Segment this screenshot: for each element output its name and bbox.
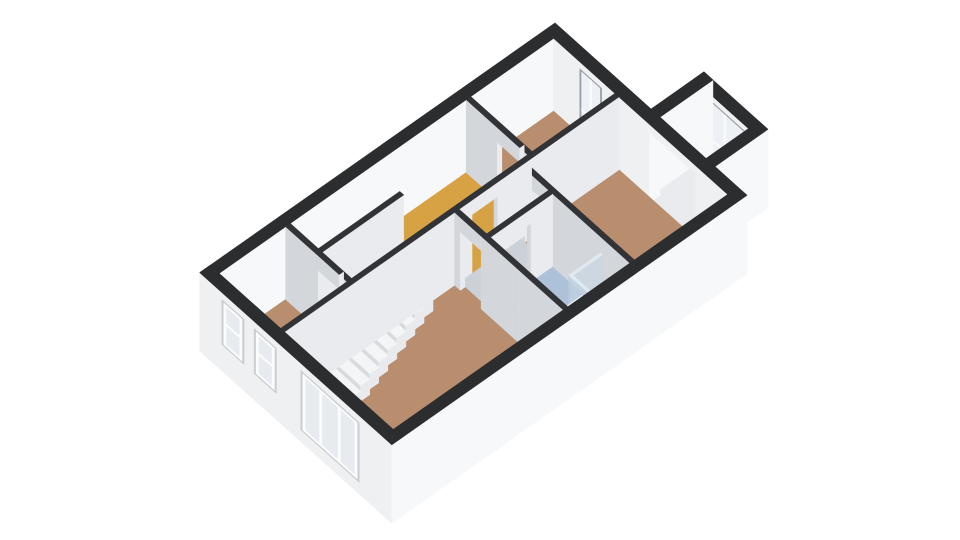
floorplan-3d-view: [0, 0, 960, 540]
living-room-window-mullion-v1: [338, 408, 340, 461]
floorplan-viewport[interactable]: [0, 0, 960, 540]
wall-bathroom-south-a-face-sw: [455, 212, 461, 290]
living-room-window-mullion-v0: [320, 392, 322, 445]
facade-sw-face-se: [392, 438, 402, 524]
